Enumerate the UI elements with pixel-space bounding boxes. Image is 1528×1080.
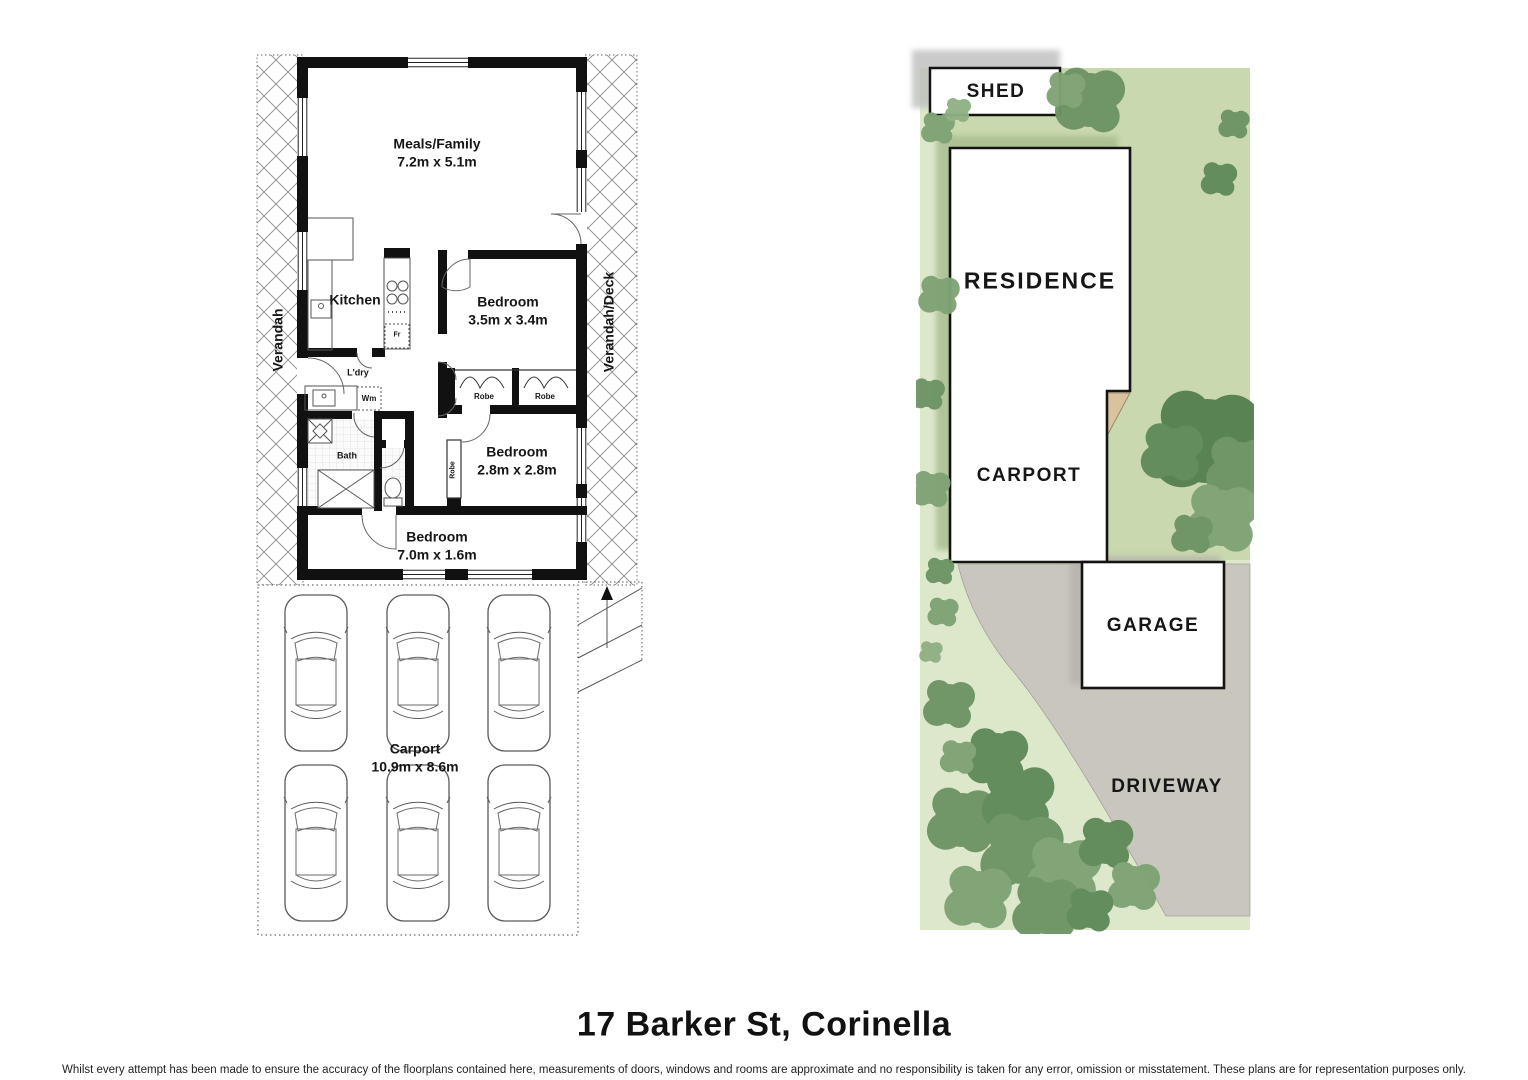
plan-graphics	[0, 0, 1528, 1080]
bedroom2-robe	[447, 440, 461, 498]
siteplan	[911, 50, 1274, 939]
verandah-hatch-right	[585, 55, 637, 585]
verandah-hatch-left	[257, 55, 303, 585]
page-title: 17 Barker St, Corinella	[577, 1006, 951, 1045]
garage-building	[1082, 562, 1224, 688]
stairs	[578, 582, 642, 692]
residence-building	[950, 148, 1130, 562]
floorplan-page: Meals/Family 7.2m x 5.1m Kitchen Bedroom…	[0, 0, 1528, 1080]
disclaimer-text: Whilst every attempt has been made to en…	[4, 1064, 1524, 1076]
